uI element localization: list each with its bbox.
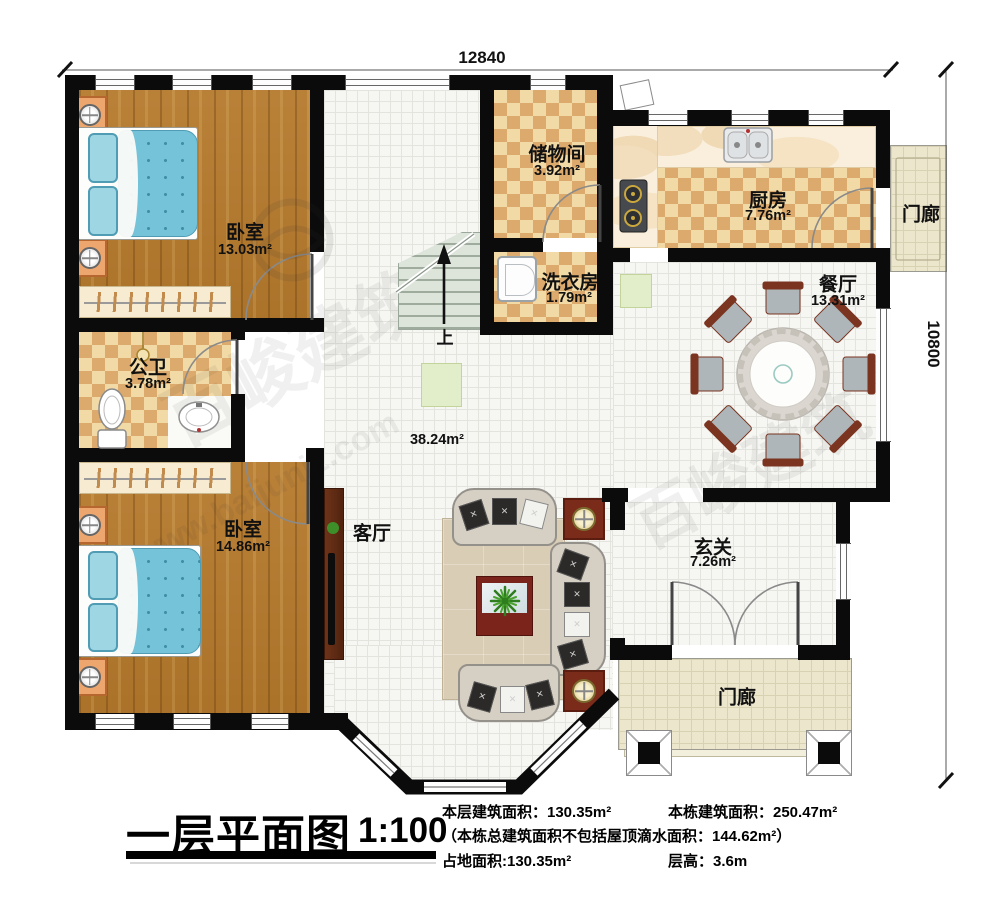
bed1-pillow bbox=[88, 186, 118, 236]
wall-segment bbox=[65, 448, 245, 462]
sofa-right bbox=[550, 542, 606, 676]
sofa-cushion bbox=[500, 686, 525, 713]
tv-cabinet bbox=[324, 488, 344, 660]
plan-scale: 1:100 bbox=[358, 811, 448, 851]
dimension-top: 12840 bbox=[458, 48, 505, 68]
lamp-icon bbox=[79, 514, 101, 536]
wall-segment bbox=[668, 248, 876, 262]
title-underline-shadow bbox=[130, 862, 436, 864]
sofa-bottom bbox=[458, 664, 560, 722]
bed1-pillow bbox=[88, 133, 118, 183]
kitchen-mat bbox=[620, 274, 652, 308]
wall-segment bbox=[65, 318, 324, 332]
washing-machine bbox=[497, 256, 537, 302]
window bbox=[95, 714, 135, 729]
room-area-laundry: 1.79m² bbox=[546, 290, 592, 306]
washer-drum bbox=[505, 264, 535, 296]
window bbox=[808, 110, 844, 125]
wall-segment bbox=[612, 645, 672, 660]
room-label-bedroom2: 卧室 bbox=[224, 515, 262, 542]
sofa-top bbox=[452, 488, 557, 546]
window bbox=[345, 75, 450, 90]
wardrobe-hangers bbox=[88, 468, 222, 488]
window bbox=[836, 543, 851, 600]
room-label-porch-right: 门廊 bbox=[902, 200, 940, 227]
wall-segment bbox=[597, 75, 613, 335]
bed2-pillow bbox=[88, 603, 118, 652]
stat-floor-area: 本层建筑面积：130.35m² bbox=[442, 801, 611, 822]
stat-note: （本栋总建筑面积不包括屋顶滴水面积：144.62m²） bbox=[442, 825, 791, 846]
window bbox=[173, 714, 211, 729]
room-label-living: 客厅 bbox=[353, 519, 391, 546]
lamp-icon bbox=[79, 247, 101, 269]
room-label-bedroom1: 卧室 bbox=[226, 218, 264, 245]
wall-segment bbox=[65, 75, 79, 730]
dimension-right: 10800 bbox=[923, 320, 943, 367]
wall-segment bbox=[480, 322, 613, 335]
lamp-icon bbox=[572, 679, 596, 703]
room-area-kitchen: 7.76m² bbox=[745, 208, 791, 224]
sofa-cushion bbox=[459, 499, 490, 531]
lamp-icon bbox=[572, 507, 596, 531]
room-area-storage: 3.92m² bbox=[534, 163, 580, 179]
wall-segment bbox=[310, 452, 324, 713]
sofa-cushion bbox=[557, 548, 590, 580]
room-area-bedroom2: 14.86m² bbox=[216, 539, 270, 555]
window bbox=[876, 308, 891, 442]
wall-segment bbox=[798, 645, 850, 660]
porch-column bbox=[626, 730, 672, 776]
wardrobe-hangers bbox=[88, 292, 222, 312]
window bbox=[648, 110, 688, 125]
column-core bbox=[638, 742, 660, 764]
stat-building-area: 本栋建筑面积：250.47m² bbox=[668, 801, 837, 822]
wall-segment bbox=[610, 502, 625, 530]
sofa-cushion bbox=[525, 679, 555, 710]
wall-segment bbox=[703, 488, 850, 502]
side-table bbox=[563, 498, 605, 540]
stat-land-area: 占地面积:130.35m² bbox=[442, 850, 571, 871]
wall-segment bbox=[602, 488, 628, 502]
window bbox=[731, 110, 769, 125]
bed2-pillow bbox=[88, 551, 118, 600]
title-underline bbox=[126, 851, 436, 859]
room-area-dining: 13.31m² bbox=[811, 293, 865, 309]
stairs-mat bbox=[421, 363, 462, 407]
side-table bbox=[563, 670, 605, 712]
sofa-cushion bbox=[519, 498, 549, 529]
window bbox=[172, 75, 212, 90]
floor-plan-canvas: 百峻建筑 www.baijunjz.com 百峻建筑 bbox=[0, 0, 1000, 914]
sofa-cushion bbox=[467, 681, 497, 713]
window bbox=[251, 714, 289, 729]
room-area-bedroom1: 13.03m² bbox=[218, 242, 272, 258]
sofa-cushion bbox=[564, 612, 590, 637]
stat-floor-height: 层高：3.6m bbox=[668, 850, 747, 871]
ac-unit bbox=[620, 79, 655, 111]
porch-column bbox=[806, 730, 852, 776]
sofa-cushion bbox=[557, 639, 589, 670]
bathroom-sink-alcove bbox=[168, 396, 231, 448]
wall-segment bbox=[613, 248, 630, 262]
lamp-icon bbox=[79, 104, 101, 126]
wall-segment bbox=[310, 90, 324, 252]
room-area-entry: 7.26m² bbox=[690, 554, 736, 570]
entry-floor bbox=[612, 502, 836, 645]
sofa-cushion bbox=[492, 498, 517, 525]
window bbox=[95, 75, 135, 90]
window bbox=[530, 75, 566, 90]
wall-segment bbox=[231, 332, 245, 340]
room-area-bath: 3.78m² bbox=[125, 376, 171, 392]
room-area-living: 38.24m² bbox=[410, 432, 464, 448]
coffee-table-glass bbox=[482, 583, 527, 613]
bedroom1-wardrobe bbox=[79, 286, 231, 318]
wall-segment bbox=[876, 110, 890, 188]
column-core bbox=[818, 742, 840, 764]
stairs-up-label: 上 bbox=[437, 324, 454, 349]
tv-icon bbox=[328, 553, 335, 645]
wall-segment bbox=[480, 90, 494, 335]
wall-segment bbox=[494, 238, 543, 252]
window bbox=[252, 75, 292, 90]
lamp-icon bbox=[79, 666, 101, 688]
bedroom2-wardrobe bbox=[79, 462, 231, 494]
sofa-cushion bbox=[564, 582, 590, 607]
kitchen-counter-left bbox=[613, 126, 658, 248]
coffee-table bbox=[476, 576, 533, 636]
room-label-porch-bottom: 门廊 bbox=[718, 683, 756, 710]
